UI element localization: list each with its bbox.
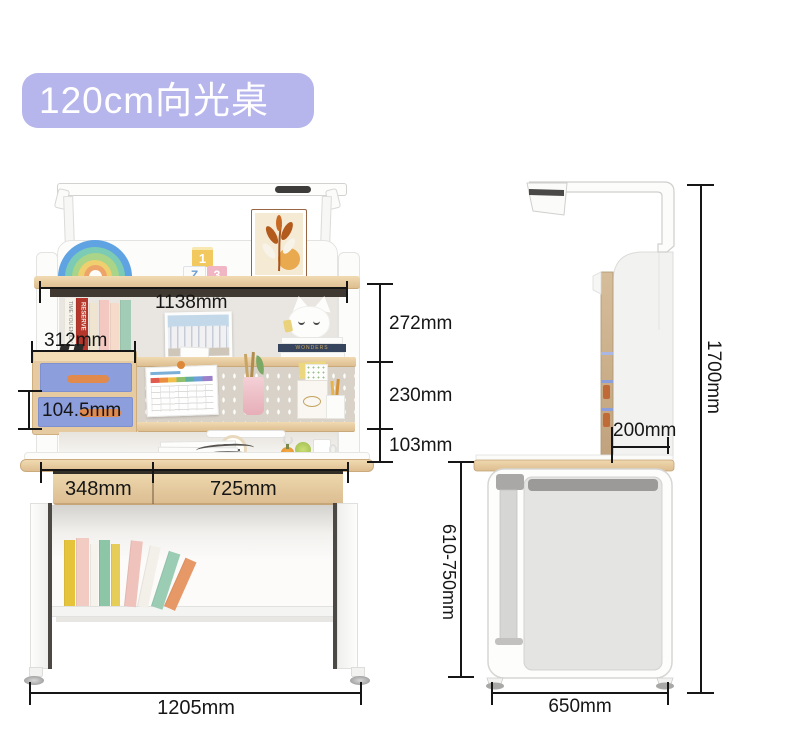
cat-face — [288, 306, 330, 339]
cat-eye — [313, 317, 320, 325]
dim-tick — [367, 461, 393, 463]
dim-line-1138 — [40, 287, 348, 289]
shelf-shadow — [56, 617, 338, 622]
calendar-grid — [151, 384, 214, 412]
book-spine — [110, 303, 119, 352]
dim-tick — [448, 461, 474, 463]
book-spine — [120, 300, 131, 352]
poster-building — [170, 326, 227, 349]
dim-line-200 — [612, 446, 670, 448]
dim-line-650 — [492, 692, 669, 694]
dim-line-1700 — [700, 185, 702, 694]
product-title: 120cm向光桌Max — [39, 80, 269, 176]
pen-cup — [243, 377, 264, 415]
calendar-title — [150, 371, 180, 375]
pegboard-pin — [177, 361, 185, 369]
dim-line-1205 — [30, 692, 362, 694]
dim-label-230: 230mm — [389, 386, 452, 407]
dim-tick — [134, 341, 136, 363]
side-drawer-handle — [603, 413, 610, 427]
side-foot-disk-right — [656, 683, 674, 690]
dim-tick — [29, 682, 31, 705]
adjustable-foot-left — [24, 676, 44, 685]
dim-tick — [347, 462, 349, 483]
dim-label-1700: 1700mm — [702, 340, 723, 414]
dim-tick — [31, 341, 33, 363]
dim-label-312: 312mm — [44, 331, 107, 352]
desk-leg-left-edge — [48, 503, 52, 669]
dim-label-103: 103mm — [389, 436, 452, 457]
side-drawer-edge — [601, 352, 613, 355]
dim-line-right-vertical — [379, 284, 381, 463]
side-leg-foot-bar — [495, 638, 523, 645]
pumpkin-stem — [286, 444, 289, 449]
dim-tick — [39, 281, 41, 303]
dim-tick — [448, 676, 474, 678]
side-leg-column — [500, 490, 517, 640]
side-drawer-handle — [603, 385, 610, 399]
drawer-handle — [67, 375, 109, 383]
book-spine — [64, 540, 75, 606]
dim-tick — [367, 283, 393, 285]
dim-tick — [367, 361, 393, 363]
book-spine — [111, 544, 120, 606]
leaf-artwork — [255, 213, 303, 275]
wall-calendar — [145, 365, 219, 417]
cat-eye — [298, 317, 305, 325]
desk-leg-left — [30, 503, 49, 669]
dim-label-104: 104.5mm — [42, 401, 121, 422]
product-dimension-diagram: 120cm向光桌Max 1 Z 3 — [0, 0, 790, 747]
side-shelf-flap — [593, 272, 601, 294]
dim-label-1205: 1205mm — [140, 697, 252, 719]
side-lamp-strip — [529, 189, 564, 196]
drawer-unit-top — [34, 352, 135, 361]
book-spine — [99, 540, 110, 606]
dim-tick — [40, 462, 42, 483]
cat-bookend — [284, 292, 336, 342]
dim-line-104 — [28, 391, 30, 430]
side-desk-panel — [524, 477, 662, 670]
dim-tick — [367, 428, 393, 430]
title-badge: 120cm向光桌Max — [22, 73, 314, 128]
pen-holder — [326, 395, 345, 419]
dim-tick — [18, 428, 42, 430]
dim-tick — [491, 682, 493, 705]
dim-line-drawers — [41, 469, 349, 471]
dim-label-610-750: 610-750mm — [438, 524, 458, 620]
dim-tick — [18, 390, 42, 392]
dim-label-348: 348mm — [65, 478, 129, 500]
dim-tick — [687, 184, 714, 186]
dim-line-610 — [460, 462, 462, 678]
rainbow-toy — [58, 222, 132, 277]
dim-tick — [152, 462, 154, 483]
art-frame — [251, 209, 307, 279]
dim-label-725: 725mm — [210, 478, 274, 500]
dim-tick — [346, 281, 348, 303]
book-spine — [90, 544, 98, 606]
dim-tick — [667, 682, 669, 705]
side-drawer-edge — [601, 380, 613, 383]
dim-tick — [687, 692, 714, 694]
dim-label-1138: 1138mm — [155, 293, 228, 314]
under-desk-books — [60, 530, 190, 606]
dim-label-650: 650mm — [542, 697, 618, 718]
stack-book-navy: WONDERS — [278, 344, 346, 352]
calendar-day-row — [151, 376, 213, 383]
book-spine — [76, 538, 89, 606]
mail-organizer — [297, 380, 328, 419]
dim-tick — [611, 427, 613, 463]
toy-block-1: 1 — [192, 247, 213, 267]
side-drawer-edge — [601, 408, 613, 411]
under-desk-shelf — [44, 606, 342, 617]
gold-label — [303, 396, 321, 407]
desk-leg-right — [337, 503, 358, 669]
side-lamp-head — [527, 183, 567, 215]
dim-tick — [360, 682, 362, 705]
stack-book — [281, 337, 343, 344]
dim-label-272: 272mm — [389, 314, 452, 335]
side-leg-bracket — [496, 474, 524, 490]
reading-light — [206, 430, 286, 438]
lamp-post-right — [320, 196, 332, 246]
dim-tick — [667, 437, 669, 454]
side-desk-panel-shadow — [528, 479, 658, 491]
side-foot-disk-left — [486, 683, 504, 690]
light-sensor-strip — [275, 186, 311, 193]
